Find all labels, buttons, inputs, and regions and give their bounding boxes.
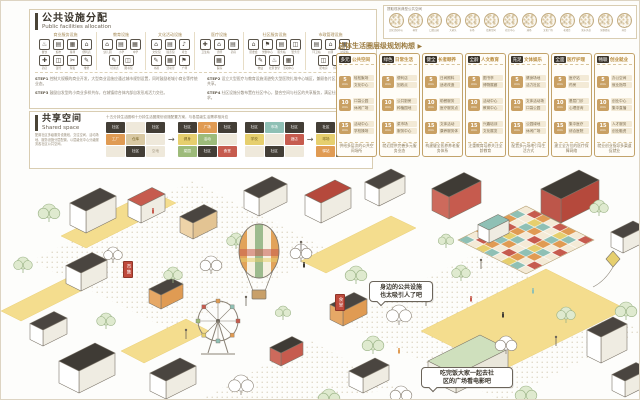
time-badge: 15min [339,122,351,134]
facility-item: ▦ 医院 [213,55,226,70]
facility-item: ▤ 药房 [227,39,240,54]
plot-cell: 社区 [106,122,125,133]
facility-label: 戏台 [178,50,190,54]
group-header: 社区服务设施 [247,32,302,38]
facility-icon: ⌂ [81,39,92,50]
facility-label: 图书馆 [122,66,134,70]
plot-cell [265,134,284,145]
facility-icon: ⌂ [248,39,259,50]
panel-title: 公共设施分配 [42,13,371,24]
card-row-10min: 10min 助餐服务医疗服务点 [425,98,460,111]
card-header: 畅联 创业就业 [597,56,632,65]
photo-label: 街角空间 [483,28,498,31]
time-badge: 5min [339,76,351,88]
facility-item: ✎ 物业 [254,55,267,70]
plan-card: 全龄 人文教育 5min 图书亭博物展廊 10min 活动中心教育中心 15mi… [465,53,506,157]
time-badge: 15min [511,122,523,134]
photos-title: 提取现状典型公共空间 [387,8,633,12]
card-badge: 充足 [511,56,523,63]
facility-item: ◫ 图书馆 [122,55,135,70]
shared-space-panel: 共享空间 Shared space 配置社区多级服务设施段，交往空间、活动场地、… [29,111,373,169]
plot-cell: 广场 [198,122,217,133]
facility-icon: ▤ [165,39,176,50]
card-title: 创业就业 [610,57,628,63]
time-badge: 15min [425,122,437,134]
group-header: 医疗设施 [198,32,240,38]
group-header: 文化活动设施 [149,32,191,38]
facility-icon: ✎ [81,55,92,66]
plan-card: 畅联 创业就业 5min 办公空间就业指导 10min 创业中心集中直播 15m… [594,53,635,157]
time-badge: 5min [468,76,480,88]
panel-title-block: 共享空间 Shared space [35,115,101,131]
site-photo-circle [522,13,537,28]
card-row-5min: 5min 图书亭博物展廊 [468,75,503,88]
facility-item: ⚑ 广场 [178,55,191,70]
facility-item: ♨ 餐饮 [38,39,51,54]
time-badge: 5min [554,76,566,88]
card-header: 充足 文体娱乐 [511,56,546,65]
card-summary: 建立全方位的医疗保障网络 [554,142,589,154]
time-badge: 5min [511,76,523,88]
facility-label: 中学 [129,50,141,54]
speech-bubble-2: 吃完饭大家一起去社 区的广场看电影吧 [421,367,513,388]
facility-icon: ▤ [228,39,239,50]
plot-cell: 社区 [265,146,284,157]
card-row-5min: 5min 办公空间就业指导 [597,75,632,88]
card-row-10min: 10min 公共厨房种植园地 [382,98,417,111]
facility-icon: ⌂ [151,39,162,50]
facility-label: 幼儿园 [101,50,113,54]
facility-group-community: 社区服务设施 ⌂ 居委会 ⚑ 党群中心 ▤ 服务站 [244,32,306,70]
photo-label: 大树头 [445,28,460,31]
card-row-15min: 15min 兴趣培训文化展览 [468,121,503,134]
facility-label: 广场 [178,66,190,70]
card-badge: 绿色 [382,56,394,63]
facility-label: 环卫站 [311,50,323,54]
red-banner-market: 市集 [123,261,133,278]
card-badge: 健全 [425,56,437,63]
facility-item: ▤ 展览馆 [164,39,177,54]
card-title: 公共空间 [352,57,370,63]
facility-item: ⌂ 文化馆 [150,39,163,54]
facility-label: 药房 [227,50,239,54]
time-badge: 15min [554,122,566,134]
facility-label: 超市 [53,50,65,54]
card-title: 日常生活 [395,57,413,63]
site-photos-panel: 提取现状典型公共空间 文化活动中心 祠堂 口袋公园 大树头 市场 [383,5,637,39]
plan-card: 充足 文体娱乐 5min 健身场地活力社区 10min 文体活动场口袋公园 15… [508,53,549,157]
plan-card: 多元 公共空间 5min 轻松聚场文化中心 10min 口袋公园休闲广场 15m… [336,53,377,157]
facility-item: ✎ 培训点 [108,55,121,70]
facility-item: ✚ 卫生站 [199,39,212,54]
facility-icon: ◫ [123,55,134,66]
plot-cell: 社区 [146,122,165,133]
facility-item: ⌂ 幼儿园 [101,39,114,54]
facility-label: 小学 [115,50,127,54]
facility-label: 活动中心 [283,66,295,70]
facility-item: ▤ 小学 [115,39,128,54]
photo-item: 井台 [615,13,633,32]
time-badge: 5min [597,76,609,88]
card-title: 人文教育 [481,57,499,63]
panel-title-block: 公共设施分配 Public facilities allocation [35,13,371,30]
site-photo-circle [465,13,480,28]
poster-board: 公共设施分配 Public facilities allocation 商业服务… [0,0,640,400]
facility-icon: ✎ [109,55,120,66]
facility-item: ♪ 戏台 [178,39,191,54]
plot-cell: 球场 [316,134,335,145]
facility-item: ◫ 银行 [52,55,65,70]
step-3: STEP3 鼓励自发型的小商业多样共存，在城镇综合体内部自发形成活力交往。 [35,90,199,95]
plot-cell: 驿站 [316,146,335,157]
plot-cell: 社区 [218,122,237,133]
facility-icon: ▦ [283,55,294,66]
card-row-15min: 15min 公园绿地休闲广场 [511,121,546,134]
card-row-5min: 5min 便利店回收点 [382,75,417,88]
card-summary: 注重教育培养关注全龄教育 [468,142,503,154]
plot-cell: 市场 [265,122,284,133]
facility-item: ⚑ 党群中心 [261,39,274,54]
time-badge: 5min [382,76,394,88]
facility-icon: ♪ [179,39,190,50]
before-after-diagrams: 社区社区工厂仓库社区空地 → 社区广场社区健身活动菜园社区食堂 社区市场社区学校… [106,122,375,157]
facility-icon: ✂ [67,55,78,66]
facility-item: ⌂ 便利店 [80,39,93,54]
card-header: 多元 公共空间 [339,56,374,65]
card-row-15min: 15min 人才服务创业融资 [597,121,632,134]
card-title: 医疗护理 [567,57,585,63]
site-photo-circle [408,13,423,28]
card-row-5min: 5min 轻松聚场文化中心 [339,75,374,88]
facility-label: 理发 [67,66,79,70]
facility-item: ✎ 书屋 [150,55,163,70]
card-row-15min: 15min 文体活动康养服务体 [425,121,460,134]
plot-cell: 仓库 [126,134,145,145]
plan-card: 健全 长者颐养 5min 日间照料适老改造 10min 助餐服务医疗服务点 15… [422,53,463,157]
facility-icon: ▤ [311,39,322,50]
facility-label: 餐饮 [39,50,51,54]
facility-label: 警务室 [290,50,302,54]
plot-cell: 健身 [178,134,197,145]
site-photo-circle [541,13,556,28]
group-header: 市政管理设施 [309,32,352,38]
facility-item: ▦ 菜场 [66,39,79,54]
facility-icon: ▤ [276,39,287,50]
facility-item: ✎ 维修 [80,55,93,70]
photo-item: 大树头 [444,13,462,32]
photo-label: 市场 [464,28,479,31]
plan-card: 全面 医疗护理 5min 医疗站药房 10min 基层门诊心理咨询 15min … [551,53,592,157]
red-banner-canteen: 食堂 [335,294,345,311]
panel-title: 共享空间 [42,115,101,125]
time-badge: 10min [597,99,609,111]
time-badge: 10min [511,99,523,111]
photo-label: 老戏台 [559,28,574,31]
plot-cell: 酒店 [285,134,304,145]
card-row-10min: 10min 活动中心教育中心 [468,98,503,111]
arrow-right-icon: → [307,135,314,144]
plan-header: 总体生活圈层级规划构想 ▶ [338,41,639,51]
site-photo-circle [617,13,632,28]
time-badge: 10min [468,99,480,111]
plot-cell: 社区 [178,122,197,133]
photo-item: 党群驿站 [596,13,614,32]
facility-item: ▤ 超市 [52,39,65,54]
card-summary: 供给多层次的公共空间场所 [339,142,374,154]
time-badge: 15min [382,122,394,134]
card-row-5min: 5min 日间照料适老改造 [425,75,460,88]
site-photo-circle [484,13,499,28]
diagram-pair-1: 社区社区工厂仓库社区空地 → 社区广场社区健身活动菜园社区食堂 [106,122,237,157]
steps-text: STEP1 控制大规模的商业开发，大型商业设施应通过城市规划设置，同时鼓励老城小… [35,76,371,100]
facility-item: ◫ 配电房 [317,55,330,70]
arrow-right-icon: ▶ [417,43,422,50]
plot-cell: 社区 [316,122,335,133]
plot-cell: 社区 [245,122,264,133]
card-badge: 全面 [554,56,566,63]
facility-icon: ◫ [318,55,329,66]
card-header: 绿色 日常生活 [382,56,417,65]
facility-label: 药店 [39,66,51,70]
plot-cell [146,134,165,145]
photo-label: 文化广场 [540,28,555,31]
facility-group-culture: 文化活动设施 ⌂ 文化馆 ▤ 展览馆 ♪ 戏台 [146,32,195,70]
facility-item: ▤ 环卫站 [310,39,323,54]
card-summary: 配置多元场地引导生活方式 [511,142,546,154]
facility-label: 卫生站 [199,50,211,54]
facility-item: ♨ 社区食堂 [268,55,281,70]
photo-item: 文化活动中心 [387,13,405,32]
card-row-10min: 10min 基层门诊心理咨询 [554,98,589,111]
plot-cell: 空地 [146,146,165,157]
life-circle-plan-panel: 总体生活圈层级规划构想 ▶ 多元 公共空间 5min 轻松聚场文化中心 10mi… [336,41,639,161]
photo-item: 社区中心 [501,13,519,32]
facility-icon: ✚ [39,55,50,66]
photo-item: 文化广场 [539,13,557,32]
photo-label: 球场 [521,28,536,31]
facility-label: 居委会 [248,50,260,54]
facility-group-medical: 医疗设施 ✚ 卫生站 ⌂ 诊所 ▤ 药房 [195,32,244,70]
card-row-10min: 10min 创业中心集中直播 [597,98,632,111]
card-badge: 多元 [339,56,351,63]
facility-icon: ♨ [39,39,50,50]
time-badge: 5min [425,76,437,88]
card-row-10min: 10min 口袋公园休闲广场 [339,98,374,111]
facility-label: 配电房 [318,66,330,70]
plot-cell [106,146,125,157]
site-photo-circle [446,13,461,28]
facility-item: ◫ 警务室 [289,39,302,54]
facility-item: ▦ 中学 [129,39,142,54]
site-photo-circle [579,13,594,28]
site-photo-circle [503,13,518,28]
shared-note: 十五分钟生活圈和十分钟生活圈规划设施配置方案，与各层级生活需求相对应 [106,115,375,120]
card-row-15min: 15min 活动中心学校操场 [339,121,374,134]
card-row-15min: 15min 菜市场服务中心 [382,121,417,134]
plot-cell [245,146,264,157]
facility-label: 展览馆 [164,50,176,54]
group-header: 商业服务设施 [38,32,93,38]
step-1: STEP1 控制大规模的商业开发，大型商业设施应通过城市规划设置，同时鼓励老城小… [35,76,199,87]
facility-label: 文化馆 [150,50,162,54]
facility-label: 银行 [53,66,65,70]
card-row-10min: 10min 文体活动场口袋公园 [511,98,546,111]
facility-label: 诊所 [213,50,225,54]
photo-item: 祠堂 [406,13,424,32]
photo-item: 球场 [520,13,538,32]
facility-icon: ▦ [214,55,225,66]
facility-label: 公厕 [325,50,337,54]
facility-item: ⌂ 诊所 [213,39,226,54]
photo-label: 祠堂 [407,28,422,31]
facility-icon: ⌂ [325,39,336,50]
time-badge: 10min [382,99,394,111]
facility-label: 服务站 [276,50,288,54]
facility-label: 菜场 [67,50,79,54]
facility-item: ▦ 活动室 [164,55,177,70]
facility-icon: ✎ [255,55,266,66]
plot-cell: 社区 [285,122,304,133]
photo-item: 街角空间 [482,13,500,32]
card-title: 长者颐养 [438,57,456,63]
site-photo-circle [427,13,442,28]
photo-label: 滨水步道 [578,28,593,31]
facility-icon: ◫ [290,39,301,50]
facility-icon: ⚑ [179,55,190,66]
plot-cell [285,146,304,157]
facility-icon: ⚑ [262,39,273,50]
card-badge: 全龄 [468,56,480,63]
plot-cell: 学校 [245,134,264,145]
time-badge: 15min [468,122,480,134]
photo-item: 口袋公园 [425,13,443,32]
photo-label: 党群驿站 [597,28,612,31]
arrow-right-icon: → [168,135,175,144]
facility-label: 物业 [255,66,267,70]
facility-label: 医院 [213,66,225,70]
photo-item: 老戏台 [558,13,576,32]
facility-label: 培训点 [108,66,120,70]
facility-item: ▤ 服务站 [275,39,288,54]
facility-icon: ▦ [165,55,176,66]
card-title: 文体娱乐 [524,57,542,63]
card-header: 全面 医疗护理 [554,56,589,65]
panel-subtitle: Public facilities allocation [42,24,371,30]
plot-cell: 菜园 [178,146,197,157]
group-header: 教育设施 [100,32,142,38]
facility-group-commerce: 商业服务设施 ♨ 餐饮 ▤ 超市 ▦ 菜场 [35,32,97,70]
facility-icon-grid: 商业服务设施 ♨ 餐饮 ▤ 超市 ▦ 菜场 [35,32,371,73]
card-summary: 就近提供完善多元服务业态 [382,142,417,154]
card-row-5min: 5min 医疗站药房 [554,75,589,88]
facility-icon: ✚ [200,39,211,50]
card-summary: 就业创业指导多渠道促就业 [597,142,632,154]
facility-label: 活动室 [164,66,176,70]
facility-label: 便利店 [81,50,93,54]
facility-icon: ⌂ [102,39,113,50]
photo-item: 市场 [463,13,481,32]
card-badge: 畅联 [597,56,609,63]
facility-icon: ✎ [151,55,162,66]
facility-group-education: 教育设施 ⌂ 幼儿园 ▤ 小学 ▦ 中学 [97,32,146,70]
site-photo-circle [560,13,575,28]
site-photo-circle [389,13,404,28]
facility-icon: ▤ [53,39,64,50]
plot-cell [218,134,237,145]
plot-cell: 活动 [198,134,217,145]
facility-label: 维修 [81,66,93,70]
photo-label: 社区中心 [502,28,517,31]
plot-cell: 食堂 [218,146,237,157]
facility-icon: ▦ [67,39,78,50]
photo-label: 口袋公园 [426,28,441,31]
speech-bubble-1: 身边的公共设施 也太吸引人了吧 [369,281,433,302]
facility-icon: ⌂ [214,39,225,50]
panel-description: 配置社区多级服务设施段，交往空间、活动场地、服务设施分层配置，以层级化中心分级服… [35,133,101,147]
plot-cell: 社区 [126,146,145,157]
facility-icon: ♨ [269,55,280,66]
plot-cell: 工厂 [106,134,125,145]
facility-icon: ◫ [53,55,64,66]
facility-item: ▦ 活动中心 [282,55,295,70]
card-row-15min: 15min 集中医疗综合医院 [554,121,589,134]
facility-item: ✂ 理发 [66,55,79,70]
facility-icon: ▦ [130,39,141,50]
card-header: 健全 长者颐养 [425,56,460,65]
public-facilities-panel: 公共设施分配 Public facilities allocation 商业服务… [29,9,377,109]
plan-card: 绿色 日常生活 5min 便利店回收点 10min 公共厨房种植园地 15min… [379,53,420,157]
time-badge: 15min [597,122,609,134]
time-badge: 10min [554,99,566,111]
card-row-5min: 5min 健身场地活力社区 [511,75,546,88]
photo-item: 滨水步道 [577,13,595,32]
facility-item: ⌂ 居委会 [247,39,260,54]
plot-cell: 社区 [198,146,217,157]
panel-subtitle: Shared space [42,125,101,131]
photo-label: 文化活动中心 [388,28,403,31]
facility-icon: ▤ [116,39,127,50]
time-badge: 10min [339,99,351,111]
facility-label: 党群中心 [262,50,274,54]
plot-cell [126,122,145,133]
facility-label: 书屋 [150,66,162,70]
card-summary: 构建健全医养养老服务体系 [425,142,460,154]
facility-label: 社区食堂 [269,66,281,70]
site-photo-circle [598,13,613,28]
photo-label: 井台 [616,28,631,31]
time-badge: 10min [425,99,437,111]
card-header: 全龄 人文教育 [468,56,503,65]
facility-item: ✚ 药店 [38,55,51,70]
